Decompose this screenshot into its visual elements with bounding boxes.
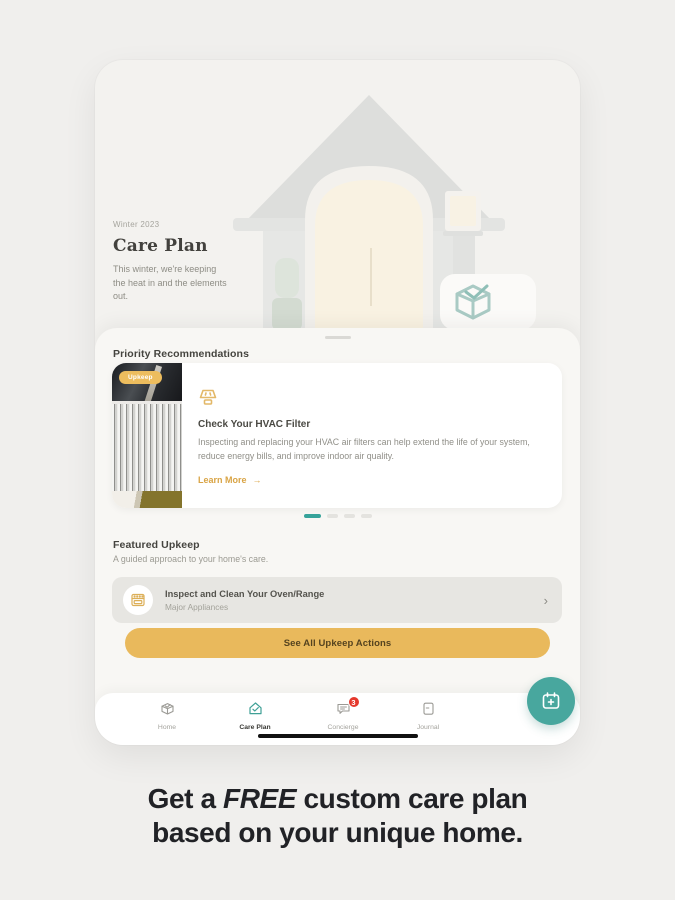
upkeep-badge: Upkeep [119, 371, 162, 384]
caption-emphasis: FREE [223, 783, 296, 814]
featured-upkeep-subheading: A guided approach to your home's care. [113, 554, 268, 564]
journal-icon [420, 700, 437, 717]
add-to-calendar-fab[interactable] [527, 677, 575, 725]
hvac-filter-photo: Upkeep [112, 363, 182, 508]
see-all-upkeep-button[interactable]: See All Upkeep Actions [125, 628, 550, 658]
air-vent-icon [198, 389, 548, 411]
tab-concierge-label: Concierge [308, 724, 378, 731]
recommendation-title: Check Your HVAC Filter [198, 419, 548, 430]
recommendation-card[interactable]: Upkeep Check Your HVAC Filter Inspecting… [112, 363, 562, 508]
caption-prefix: Get a [148, 783, 223, 814]
calendar-plus-icon [540, 690, 562, 712]
home-box-icon [159, 700, 176, 717]
hero-description: This winter, we're keeping the heat in a… [113, 263, 231, 304]
bottom-tab-bar: Home Care Plan 3 Concierge [95, 693, 580, 745]
carousel-dot[interactable] [327, 514, 338, 518]
marketing-caption: Get a FREE custom care plan based on you… [0, 782, 675, 851]
page-title: Care Plan [113, 236, 243, 256]
recommendation-description: Inspecting and replacing your HVAC air f… [198, 436, 548, 463]
tab-care-plan[interactable]: Care Plan [220, 700, 290, 731]
carousel-dots [95, 514, 580, 518]
oven-icon-circle [123, 585, 153, 615]
upkeep-item-title: Inspect and Clean Your Oven/Range [165, 589, 324, 599]
priority-recommendations-heading: Priority Recommendations [113, 348, 249, 360]
oven-icon [130, 592, 146, 608]
tab-home-label: Home [132, 724, 202, 731]
recommendation-card-body: Check Your HVAC Filter Inspecting and re… [182, 363, 562, 508]
tab-care-plan-label: Care Plan [220, 724, 290, 731]
season-label: Winter 2023 [113, 220, 243, 229]
tab-journal-label: Journal [393, 724, 463, 731]
sheet-drag-handle[interactable] [325, 336, 351, 339]
content-sheet: Priority Recommendations Upkeep Check [95, 328, 580, 745]
carousel-dot-active[interactable] [304, 514, 321, 518]
hvac-photo-floor [112, 491, 182, 508]
chat-bubble-icon: 3 [335, 700, 352, 717]
caption-suffix: custom care plan [296, 783, 527, 814]
hero-text-block: Winter 2023 Care Plan This winter, we're… [113, 220, 243, 304]
tab-concierge[interactable]: 3 Concierge [308, 700, 378, 731]
upkeep-item-category: Major Appliances [165, 602, 324, 612]
tab-journal[interactable]: Journal [393, 700, 463, 731]
learn-more-label: Learn More [198, 475, 247, 485]
house-check-icon [247, 700, 264, 717]
hero-section: Winter 2023 Care Plan This winter, we're… [95, 60, 580, 330]
featured-upkeep-heading: Featured Upkeep [113, 539, 200, 551]
home-indicator-bar[interactable] [258, 734, 418, 738]
upkeep-list-item[interactable]: Inspect and Clean Your Oven/Range Major … [112, 577, 562, 623]
caption-line2: based on your unique home. [152, 817, 523, 848]
app-screen-frame: Winter 2023 Care Plan This winter, we're… [95, 60, 580, 745]
learn-more-link[interactable]: Learn More→ [198, 475, 262, 485]
carousel-dot[interactable] [361, 514, 372, 518]
tab-home[interactable]: Home [132, 700, 202, 731]
hvac-photo-filter-pleats [112, 401, 182, 491]
carousel-dot[interactable] [344, 514, 355, 518]
concierge-notification-badge: 3 [348, 696, 360, 708]
arrow-right-icon: → [253, 475, 262, 485]
upkeep-item-text: Inspect and Clean Your Oven/Range Major … [165, 589, 324, 612]
chevron-right-icon: › [544, 594, 548, 607]
